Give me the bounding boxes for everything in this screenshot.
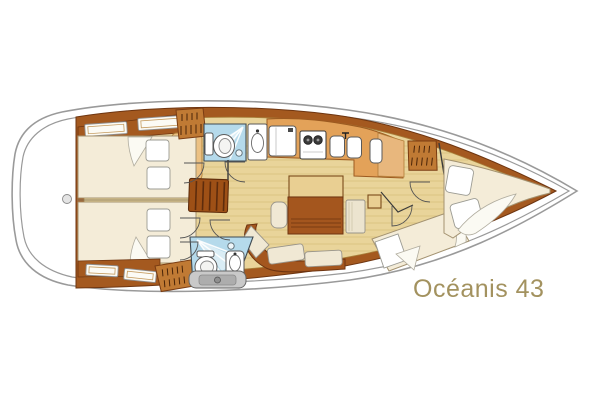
shower-drain bbox=[228, 243, 234, 249]
pillow bbox=[146, 140, 169, 161]
faucet bbox=[234, 253, 237, 256]
sink-right bbox=[347, 137, 362, 158]
cushion bbox=[305, 250, 343, 267]
companionway-steps bbox=[188, 178, 228, 212]
hanging-locker-top bbox=[176, 108, 206, 139]
side-table bbox=[368, 195, 381, 208]
washbasin bbox=[252, 134, 264, 153]
toilet-tank bbox=[205, 133, 213, 155]
aft-head bbox=[189, 237, 253, 288]
stool bbox=[271, 202, 287, 228]
boat-model-title: Océanis 43 bbox=[413, 275, 544, 303]
stove bbox=[300, 131, 326, 159]
drawer bbox=[85, 122, 128, 137]
hanging-locker-forward bbox=[405, 138, 440, 173]
yacht-floorplan: Océanis 43 bbox=[0, 0, 600, 400]
faucet bbox=[256, 129, 259, 132]
icebox-hinge bbox=[288, 128, 293, 132]
transom-fixture bbox=[189, 271, 246, 288]
washbasin bbox=[230, 255, 241, 271]
floorplan-canvas: Océanis 43 bbox=[0, 0, 600, 400]
shower-drain bbox=[236, 150, 242, 156]
pillow bbox=[147, 236, 170, 258]
saloon-table bbox=[288, 176, 343, 234]
pillow bbox=[147, 209, 170, 231]
pillow bbox=[147, 167, 170, 189]
forward-head bbox=[204, 124, 246, 161]
stern-fitting bbox=[63, 195, 72, 204]
head-vanity bbox=[248, 124, 267, 160]
drawer bbox=[138, 115, 183, 130]
drawer bbox=[86, 264, 119, 277]
sink-left bbox=[330, 136, 345, 157]
galley-end-sink bbox=[370, 139, 382, 163]
pillow bbox=[445, 165, 474, 196]
